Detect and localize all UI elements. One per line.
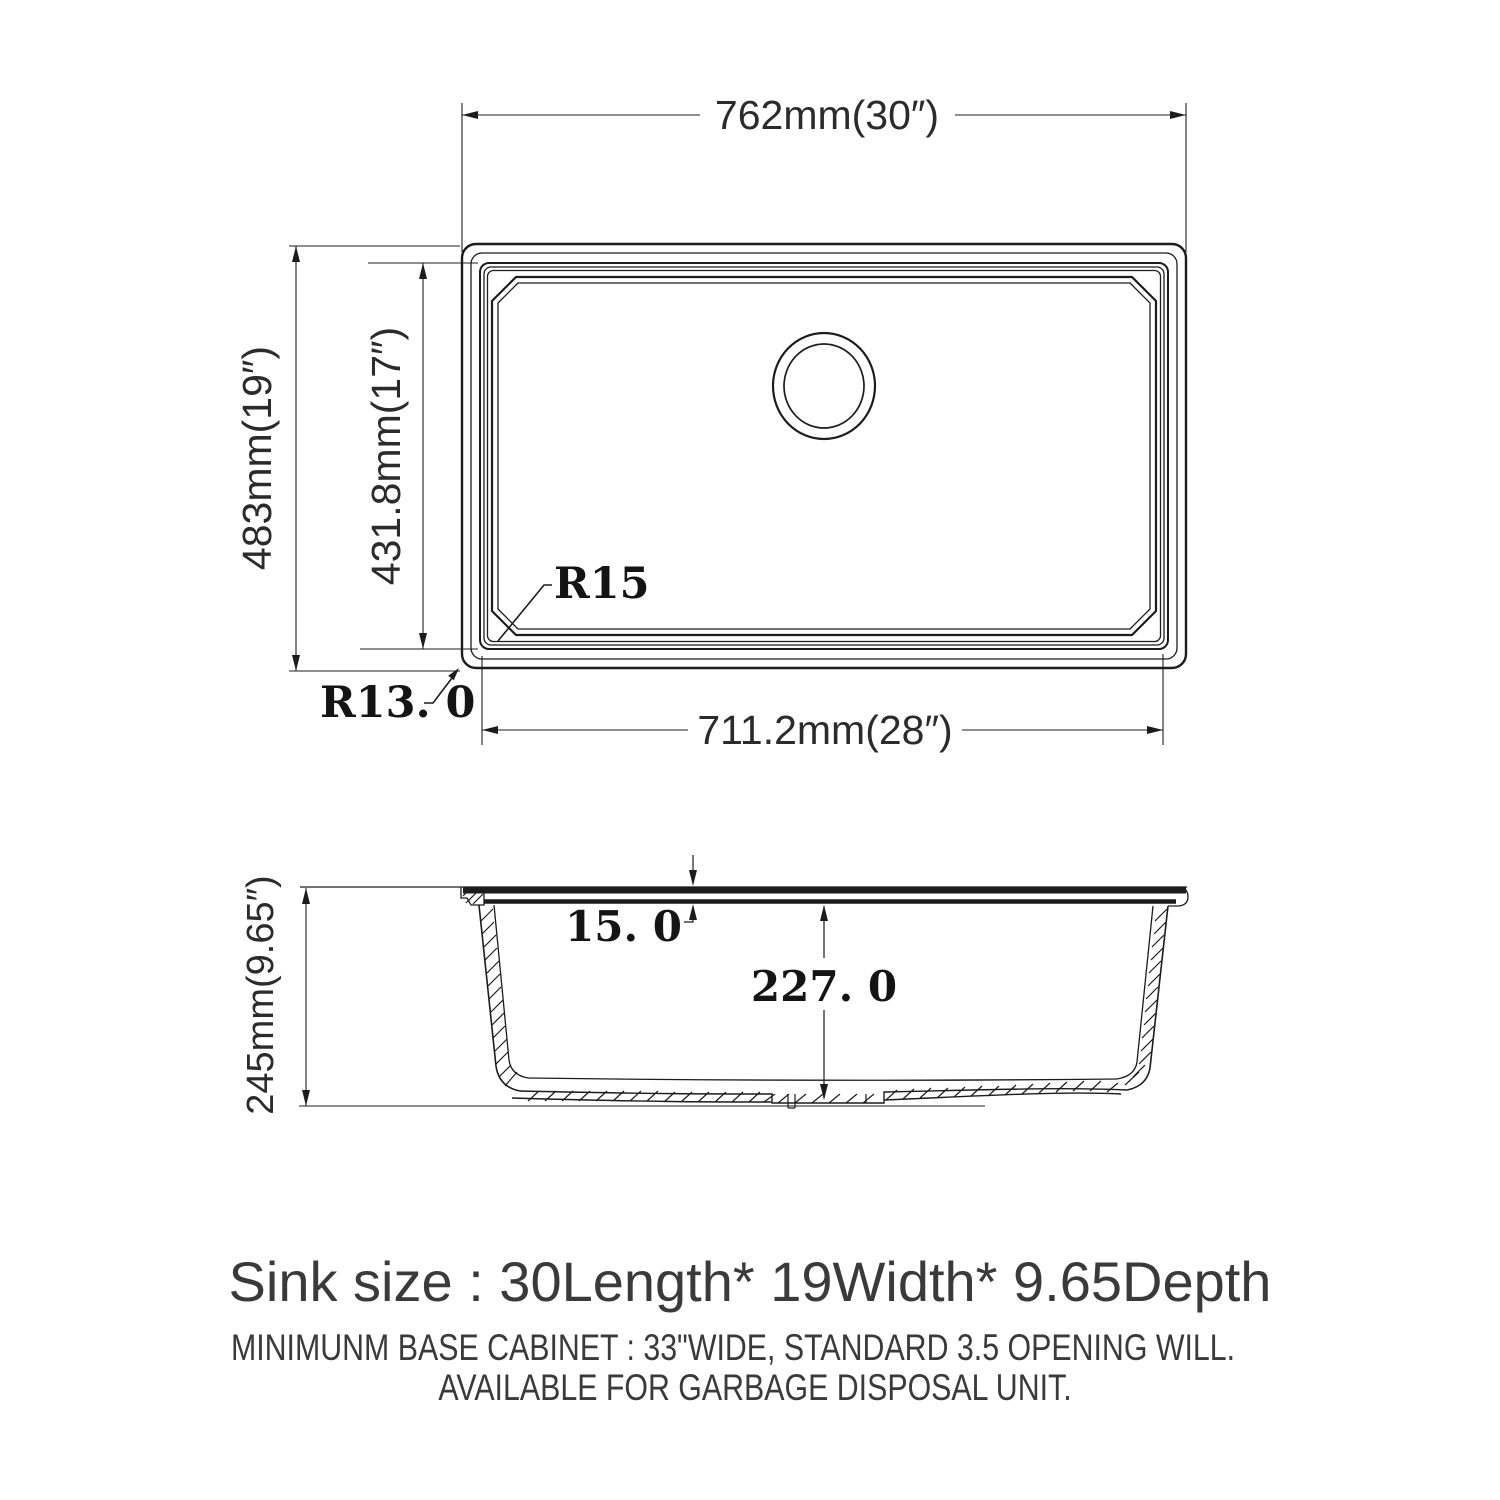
side-view-right-wall-inner <box>1117 906 1153 1079</box>
dim-inner-width-label: 711.2mm(28″) <box>697 707 952 753</box>
dim-rim-thickness: 15. 0 <box>565 855 697 951</box>
caption-note-line-2: AVAILABLE FOR GARBAGE DISPOSAL UNIT. <box>438 1367 1071 1409</box>
arrow-down-icon <box>419 633 427 649</box>
dim-rim-thickness-label: 15. 0 <box>565 902 682 951</box>
arrow-up-icon <box>302 888 310 904</box>
arrow-up-icon <box>820 905 828 921</box>
drawing-svg: 762mm(30″) 483mm(19″) 431.8mm(17″) 711.2… <box>0 0 1500 1500</box>
dim-overall-depth-label: 483mm(19″) <box>234 346 280 570</box>
callout-inner-radius-label: R15 <box>554 559 650 609</box>
dim-overall-width: 762mm(30″) <box>462 92 1186 252</box>
dim-overall-depth: 483mm(19″) <box>234 246 460 671</box>
top-view: 762mm(30″) 483mm(19″) 431.8mm(17″) 711.2… <box>234 92 1186 753</box>
caption-block: Sink size : 30Length* 19Width* 9.65Depth… <box>229 1250 1272 1409</box>
drain-inner-circle <box>784 344 864 428</box>
side-view-left-wall-hatch <box>481 909 517 1086</box>
arrow-down-icon <box>820 1084 828 1100</box>
arrow-right-icon <box>1170 111 1186 119</box>
drain-outer-circle <box>773 333 875 439</box>
arrow-up-icon <box>292 246 300 262</box>
caption-note-line-1: MINIMUNM BASE CABINET : 33"WIDE, STANDAR… <box>231 1327 1235 1369</box>
dim-inner-depth: 431.8mm(17″) <box>360 263 478 649</box>
side-view: 245mm(9.65″) 15. 0 227. 0 <box>240 855 1188 1115</box>
arrow-right-icon <box>1147 726 1163 734</box>
arrow-left-icon <box>462 111 478 119</box>
side-view-right-wall-hatch <box>1125 909 1167 1085</box>
side-view-inner-bottom-line <box>528 1078 1117 1080</box>
arrow-up-icon <box>419 263 427 279</box>
side-view-left-wall-outer <box>479 905 520 1091</box>
callout-outer-radius-label: R13. 0 <box>320 678 475 728</box>
dim-overall-height-label: 245mm(9.65″) <box>240 875 282 1114</box>
dim-bowl-depth: 227. 0 <box>751 905 897 1100</box>
sink-dimension-drawing: 762mm(30″) 483mm(19″) 431.8mm(17″) 711.2… <box>0 0 1500 1500</box>
arrow-up-icon <box>689 904 697 920</box>
caption-sink-size: Sink size : 30Length* 19Width* 9.65Depth <box>229 1250 1272 1313</box>
arrow-down-icon <box>292 655 300 671</box>
arrow-down-icon <box>302 1090 310 1106</box>
callout-inner-radius-leader <box>498 585 552 641</box>
dim-inner-depth-label: 431.8mm(17″) <box>363 327 409 585</box>
callout-outer-radius: R13. 0 <box>320 668 475 728</box>
side-view-left-wall-inner <box>494 905 528 1078</box>
dim-bowl-depth-label: 227. 0 <box>751 962 897 1011</box>
arrow-down-icon <box>689 870 697 886</box>
dim-overall-width-label: 762mm(30″) <box>715 92 939 138</box>
arrow-left-icon <box>482 726 498 734</box>
